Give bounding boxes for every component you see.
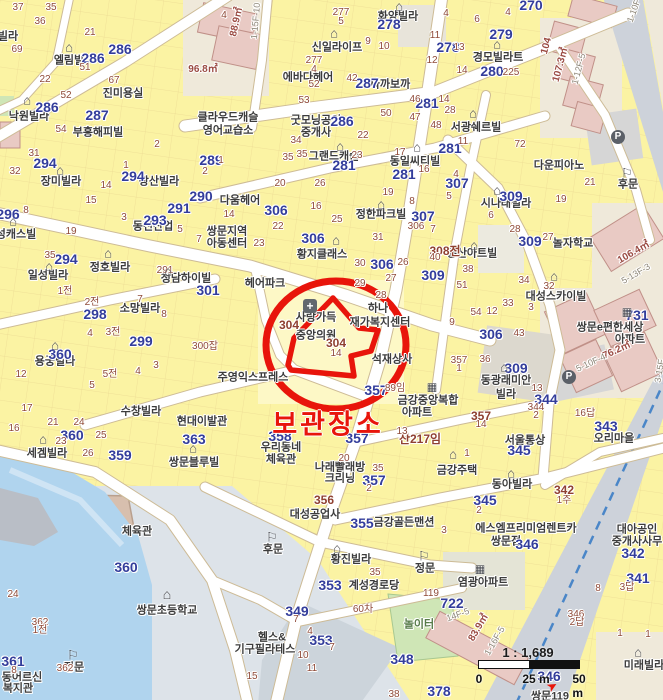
map-label: 16 [310,202,321,212]
house-icon: ⌂ [336,140,344,153]
map-label: 36 [34,17,45,27]
map-label: 19 [65,227,76,237]
map-label: 성캐스빌 [0,230,36,241]
map-label: 225 [503,68,520,78]
map-label: 24 [73,418,84,428]
map-label: 298 [83,307,106,321]
map-label: 소망빌라 [120,304,160,315]
map-label: 7 [430,225,436,235]
map-label: 9 [365,37,371,47]
map-label: 오리마을 [594,434,634,445]
map-label: 1 [123,161,129,171]
scale-tick-25: 25 m [522,672,549,686]
house-icon: ⌂ [45,260,53,273]
map-label: 306 [479,327,502,341]
map-label: 23 [253,239,264,249]
map-label: 대성공업사 [290,510,341,521]
house-icon: ⌂ [493,38,501,51]
map-label: 8 [161,310,167,320]
map-label: 12 [15,370,26,380]
map-label: 13 [531,384,542,394]
map-label: 17 [394,148,405,158]
map-label: 306 [408,222,425,232]
map-label: 278 [377,17,400,31]
map-label: 11 [430,31,440,41]
map-label: 빌라 [496,390,516,401]
scale-ratio-label: 1 : 1,689 [502,645,553,660]
map-label: 24 [7,590,18,600]
map-label: 47 [409,113,420,123]
map-label: 306 [301,231,324,245]
map-label: 금강주택 [437,466,477,477]
map-label: 현대이발관 [177,417,228,428]
map-label: 3답 [620,583,635,593]
map-label: 14 [330,349,341,359]
map-label: 16답 [575,409,595,419]
map-label: 체육관 [122,527,152,538]
house-icon: ⌂ [56,164,64,177]
map-label: 30 [354,259,365,269]
map-label: 주영익스프레스 [218,373,289,384]
map-label: 353 [318,578,341,592]
map-label: 2 [476,506,482,516]
map-label: 쌍문지역 [207,227,247,238]
house-icon: ⌂ [23,94,31,107]
map-label: 15 [246,672,257,682]
map-label: 8 [595,584,601,594]
map-labels-layer: 엘림빌진미용실낙원빌라부흥해피빌빌라신일라이프화양빌라에바다헤어짜까보까클라우드… [0,0,663,700]
map-label: 12 [426,56,437,66]
map-label: 2 [366,484,372,494]
map-label: 359 [108,448,131,462]
map-label: 다움헤어 [220,196,260,207]
map-label: 4 [87,329,93,339]
map-label: 3 [441,526,447,536]
map-label: 72 [514,140,525,150]
map-label: 306 [370,257,393,271]
map-label: 서광쉐르빌 [451,123,502,134]
map-label: 부흥해피빌 [73,128,124,139]
map-label: 28 [375,291,386,301]
map-label: 13 [453,43,464,53]
map-label: 38 [462,265,473,275]
map-label: 8 [11,666,17,676]
map-label: 355 [350,516,373,530]
house-icon: ⌂ [634,646,642,659]
map-label: 기구필라테스 [235,645,296,656]
map-label: 정문 [415,564,435,575]
map-label: 342 [621,546,644,560]
map-label: 14 [100,181,111,191]
map-label: 51 [79,63,90,73]
map-label: 40 [429,253,440,263]
map-label: 4 [221,11,227,21]
map-label: 22 [272,222,283,232]
house-icon: ⌂ [449,448,457,461]
map-label: 26 [82,449,93,459]
map-label: 4 [135,367,141,377]
map-label: 1주 [557,496,572,506]
scale-tick-0: 0 [476,672,483,686]
map-label: 후문 [618,180,638,191]
map-label: 309 [421,268,444,282]
map-label: 50 [380,109,391,119]
map-label: 헬스& [258,633,286,644]
map-label: 재가복지센터 [350,318,411,329]
house-icon: ⌂ [9,215,17,228]
map-label: 1-12F-5 [571,53,588,86]
map-label: 348 [390,652,413,666]
map-label: 2 [202,167,208,177]
map-label: 67 [108,76,119,86]
map-label: 32 [9,167,20,177]
map-label: 영어교습소 [203,126,254,137]
house-icon: ⌂ [330,27,338,40]
map-label: 황진빌라 [331,555,371,566]
bldg-icon: ▦ [475,565,485,576]
house-icon: ⌂ [469,107,477,120]
map-label: 35 [372,464,383,474]
map-label: 23 [351,151,362,161]
map-label: 107.3㎡ [552,47,571,83]
map-label: 염광아파트 [458,578,509,589]
map-label: 헤어파크 [245,279,285,290]
house-icon: ⌂ [333,542,341,555]
map-label: 4 [307,627,313,637]
map-label: 345 [507,443,530,457]
map-label: 31 [372,233,383,243]
map-label: 26 [397,258,408,268]
map-label: 놀자학교 [553,239,593,250]
map-label: 300잡 [192,342,218,352]
map-label: 21 [47,418,58,428]
house-icon: ⌂ [65,41,73,54]
map-label: 20 [338,454,349,464]
map-label: 복지관 [3,684,33,695]
house-icon: ⌂ [500,361,508,374]
map-label: 89임 [385,384,405,394]
map-label: 4 [505,8,511,18]
map-label: 크리닝 [325,474,355,485]
map-label: 5 [89,381,95,391]
map-label: 343 [594,419,617,433]
map-label: 금강골든맨션 [374,518,435,529]
map-label: 51 [456,281,467,291]
map-label: 35 [296,150,307,160]
map-label: 96.8㎡ [188,65,217,75]
map-label: 309 [499,189,522,203]
map-label: 16 [418,165,429,175]
map-label: 69 [11,45,22,55]
map-viewport[interactable]: 엘림빌진미용실낙원빌라부흥해피빌빌라신일라이프화양빌라에바다헤어짜까보까클라우드… [0,0,663,700]
school-icon: ⌂ [163,587,171,601]
map-label: 2전 [85,298,100,308]
map-label: 13 [396,427,407,437]
map-label: 7 [137,295,143,305]
map-label: 창산빌라 [139,177,179,188]
map-label: 26 [314,179,325,189]
map-label: 356 [314,494,334,506]
scale-tick-50: 50 m [572,672,585,700]
house-icon: ⌂ [493,184,501,197]
map-label: 60차 [353,605,373,615]
map-label: 1 [218,156,224,166]
map-label: 11 [458,137,468,147]
map-label: 293 [143,213,166,227]
house-icon: ⌂ [104,247,112,260]
map-label: 5-13F-3 [620,262,652,286]
map-label: 53 [298,96,309,106]
map-label: 정호빌라 [90,263,130,274]
map-label: 대성스카이빌 [526,292,587,303]
map-label: 54 [470,308,481,318]
map-label: 286 [330,114,353,128]
map-label: 12 [486,307,497,317]
map-label: 3-15F [654,359,663,384]
map-label: 281 [392,167,415,181]
map-label: 1-15F-10 [250,2,262,39]
flag-icon: ⚐ [67,649,79,662]
map-label: 38 [388,690,399,700]
map-label: 5-10F-4 [575,352,607,373]
house-icon: ⌂ [470,239,478,252]
map-label: 중개사 [301,128,331,139]
map-label: 23 [55,437,66,447]
map-label: 미래빌라 [624,661,663,672]
map-label: 7 [293,615,299,625]
map-label: 3 [528,303,534,313]
map-label: 14 [456,66,467,76]
map-label: 쌍문초등학교 [137,606,198,617]
map-label: 빌라 [0,32,18,43]
map-label: 306 [264,203,287,217]
map-label: 34 [518,276,529,286]
map-label: 9 [449,318,455,328]
map-label: 21 [84,28,95,38]
map-label: 22 [357,131,368,141]
map-label: 4 [453,170,459,180]
map-label: 301 [196,283,219,297]
map-label: 25 [331,215,342,225]
map-label: 20 [274,179,285,189]
house-icon: ⌂ [189,442,197,455]
flag-icon: ⚐ [621,167,633,180]
map-label: 88.9㎡ [229,7,245,38]
map-label: 346 [515,537,538,551]
map-label: 52 [308,80,319,90]
map-label: 5 [446,192,452,202]
map-label: 46 [409,95,420,105]
map-label: 33 [502,299,513,309]
map-label: 27 [542,233,553,243]
map-label: 다운피아노 [534,161,585,172]
map-label: 아파트 [402,408,432,419]
map-label: 황지클래스 [297,250,348,261]
map-label: 362 [57,664,74,674]
p-icon: P [562,370,576,384]
map-label: 14 [223,210,234,220]
map-label: 29 [354,279,365,289]
map-label: 5 [177,225,183,235]
map-label: 119 [423,589,439,599]
map-label: 2 [533,411,539,421]
map-label: 28 [509,225,520,235]
map-label: 28 [444,106,455,116]
map-label: 35 [369,568,380,578]
map-label: 286 [35,100,58,114]
map-label: 43 [513,329,524,339]
map-label: 32 [543,282,554,292]
map-label: 25 [95,431,106,441]
house-icon: ⌂ [332,234,340,247]
map-label: 287 [85,108,108,122]
map-label: 37 [12,3,23,13]
map-label: 금강중앙복합 [398,396,459,407]
map-label: 2 [154,140,160,150]
map-label: 석재상사 [372,355,412,366]
bldg-icon: ▦ [622,308,632,319]
map-label: 378 [427,684,450,698]
map-label: 309 [518,234,541,248]
map-label: 1 [456,364,462,374]
map-label: 27 [385,274,396,284]
map-label: 신일라이프 [312,43,363,54]
map-label: 290 [189,189,212,203]
map-label: 294 [121,169,144,183]
map-label: 270 [519,0,542,12]
map-label: 19 [555,195,566,205]
map-label: 294 [54,252,77,266]
house-icon: ⌂ [377,198,385,211]
map-label: 14 [438,95,449,105]
cross-icon: + [303,299,317,313]
house-icon: ⌂ [413,141,421,154]
map-label: 2답 [570,618,585,628]
map-label: 사랑가득 [296,313,336,324]
p-icon: P [611,130,625,144]
map-label: 15 [85,196,96,206]
map-label: 35 [282,153,293,163]
map-label: 36 [479,355,490,365]
map-label: 우리동네 [261,443,301,454]
map-label: 대아공인 [617,525,657,536]
map-label: 후문 [263,545,283,556]
map-label: 진미용실 [103,89,143,100]
flag-icon: ⚐ [418,550,430,563]
map-label: 104 [540,37,554,56]
map-label: 아동센터 [207,239,247,250]
map-label: 291 [167,201,190,215]
map-label: 16 [8,424,19,434]
map-label: 35 [45,3,56,13]
house-icon: ⌂ [550,270,558,283]
map-label: 1전 [33,626,48,636]
map-label: 4 [443,9,449,19]
map-label: 3 [153,361,159,371]
map-label: 6 [488,211,494,221]
scale-bar-track [478,660,580,669]
house-icon: ⌂ [39,433,47,446]
map-label: 동광래미안 [481,376,532,387]
map-label: 280 [480,64,503,78]
map-label: 10 [297,651,308,661]
house-icon: ⌂ [507,467,515,480]
map-label: 11 [307,664,317,674]
map-label: 3 [121,213,127,223]
map-label: 5 [338,17,344,27]
map-label: 쌍문e편한세상 [577,323,644,334]
map-label: 17 [21,404,32,414]
map-label: 수창빌라 [121,407,161,418]
flag-icon: ⚐ [266,531,278,544]
map-label: 299 [129,334,152,348]
map-label: 360 [114,560,137,574]
map-label: 쌍문블루빌 [169,458,220,469]
map-label: 304 [279,319,299,331]
map-label: 10 [378,42,389,52]
map-label: 8 [23,206,29,216]
map-label: 52 [60,91,71,101]
map-label: 7 [329,643,335,653]
map-label: 31 [28,149,39,159]
map-label: 6 [474,15,480,25]
map-label: 하나 [368,304,388,315]
house-icon: ⌂ [51,339,59,352]
map-label: 1-10F [626,0,643,24]
map-label: 34 [290,136,301,146]
house-icon: ⌂ [164,265,172,278]
map-label: 경모빌라트 [473,53,524,64]
map-label: 1 [464,449,470,459]
map-label: 48 [430,121,441,131]
annotation-storage-label: 보관장소 [272,403,383,442]
map-label: 286 [108,42,131,56]
house-icon: ⌂ [395,0,403,13]
map-label: 83.9㎡ [467,613,490,644]
map-label: 체육관 [266,455,296,466]
map-label: 놀이터 [404,620,434,631]
map-label: 계성경로당 [349,581,400,592]
map-label: 42 [346,74,357,84]
map-label: 7 [196,235,202,245]
map-label: 5전 [103,370,118,380]
map-label: 에스엠프리미엄렌트카 [475,524,576,535]
map-label: 세겜빌라 [27,449,67,460]
map-label: 287 [355,76,378,90]
bldg-icon: ▦ [427,383,437,394]
map-label: 장미빌라 [41,177,81,188]
map-label: 1전 [58,287,73,297]
map-label: 21 [584,178,595,188]
map-label: 14 [475,420,486,430]
map-label: 동아빌라 [492,480,532,491]
map-label: 1 [645,630,651,640]
map-label: 3전 [106,328,121,338]
map-label: 22 [39,75,50,85]
map-label: 4 [311,65,317,75]
map-label: 54 [55,125,66,135]
map-label: 8 [409,197,415,207]
map-label: 1 [617,629,623,639]
map-label: 클라우드캐슬 [198,113,259,124]
